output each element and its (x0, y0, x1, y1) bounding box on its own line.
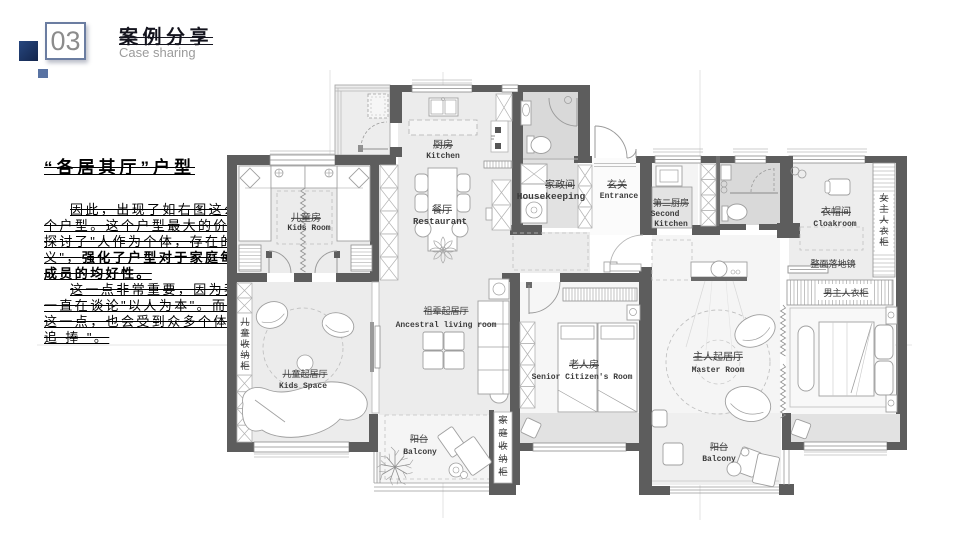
svg-text:Senior Citizen's Room: Senior Citizen's Room (532, 373, 633, 382)
svg-text:Ancestral living room: Ancestral living room (396, 321, 497, 330)
svg-text:家: 家 (498, 414, 507, 425)
svg-text:Balcony: Balcony (702, 455, 736, 464)
svg-text:主: 主 (879, 203, 888, 214)
svg-text:衣: 衣 (879, 225, 888, 236)
svg-text:童: 童 (240, 327, 249, 338)
svg-text:第二厨房: 第二厨房 (653, 197, 689, 208)
svg-text:纳: 纳 (498, 453, 507, 464)
svg-text:Master Room: Master Room (692, 366, 745, 375)
svg-text:儿童房: 儿童房 (291, 211, 321, 224)
svg-text:玄关: 玄关 (607, 178, 627, 191)
svg-text:Restaurant: Restaurant (413, 217, 467, 227)
svg-text:Kitchen: Kitchen (426, 152, 460, 161)
svg-text:整面落地镜: 整面落地镜 (810, 258, 855, 269)
svg-text:老人房: 老人房 (569, 358, 599, 371)
svg-text:厨房: 厨房 (433, 138, 453, 151)
svg-text:男主人衣柜: 男主人衣柜 (823, 287, 868, 298)
svg-text:餐厅: 餐厅 (432, 203, 452, 216)
svg-text:收: 收 (240, 338, 249, 349)
svg-text:Kids Space: Kids Space (279, 382, 327, 391)
svg-text:祖辈起居厅: 祖辈起居厅 (423, 305, 468, 316)
svg-text:收: 收 (498, 440, 507, 451)
svg-text:纳: 纳 (240, 349, 249, 360)
svg-text:庭: 庭 (498, 427, 507, 438)
svg-text:柜: 柜 (240, 360, 249, 371)
svg-text:Entrance: Entrance (600, 192, 639, 201)
svg-text:Kids Room: Kids Room (287, 224, 330, 233)
svg-text:Balcony: Balcony (403, 448, 437, 457)
svg-text:柜: 柜 (498, 466, 507, 477)
svg-text:Housekeeping: Housekeeping (517, 191, 586, 202)
svg-text:阳台: 阳台 (710, 441, 728, 452)
svg-text:Kitchen: Kitchen (654, 220, 688, 229)
svg-text:家政间: 家政间 (545, 178, 575, 191)
svg-text:阳台: 阳台 (410, 433, 428, 444)
svg-text:女: 女 (879, 192, 888, 203)
svg-text:儿: 儿 (240, 317, 249, 327)
svg-text:衣帽间: 衣帽间 (821, 205, 851, 218)
svg-text:主人起居厅: 主人起居厅 (693, 351, 743, 363)
svg-text:Cloakroom: Cloakroom (813, 220, 856, 229)
svg-text:儿童起居厅: 儿童起居厅 (282, 368, 327, 379)
svg-text:柜: 柜 (879, 236, 888, 247)
svg-text:人: 人 (879, 215, 888, 225)
svg-text:Second: Second (651, 210, 680, 219)
